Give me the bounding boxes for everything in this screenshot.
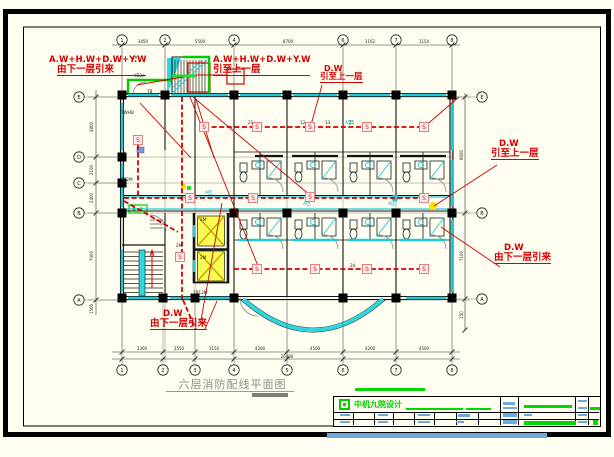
dimension-text: 4500 [310,346,321,351]
field-text-bar [578,400,587,402]
dimension-text: 4200 [365,346,376,351]
plan-micro-label: TB [146,89,153,94]
signature-bar [406,408,463,410]
dimension-total-text: 26400 [281,354,294,359]
grid-bubble-label: 8 [450,38,453,44]
smoke-detector-label: S [422,195,426,202]
wiring-leader-line [424,97,459,127]
titleblock-top-green-bar [355,388,425,391]
column [448,294,457,303]
titleblock-line [588,397,589,425]
field-text-bar [418,421,430,423]
smoke-detector-label: S [422,124,426,131]
stairwell [122,215,166,296]
grid-bubble-label: A [480,297,484,303]
dimension-text: 3162 [365,39,376,44]
annotation-dw-right-lower: D.W 由下一层引来 [494,244,551,264]
column [230,294,239,303]
annotation-text: 由下一层引来 [150,319,207,330]
smoke-detector-label: S [178,254,182,261]
field-text-bar [578,407,587,409]
grid-bubble-label: 3 [193,368,196,374]
dimension-text: 4800 [89,121,94,132]
annotation-dw-bottom: D.W 由下一层引来 [150,310,207,330]
titleblock-line [434,412,435,425]
grid-bubble-label: E [480,95,483,101]
field-text-bar [340,414,350,416]
company-logo-mark [343,403,346,406]
field-text-bar [340,421,350,423]
dimension-text: 2400 [89,192,94,203]
grid-bubble-label: B [480,211,484,217]
smoke-detector-label: S [365,124,369,131]
dimension-text: 2100 [89,164,94,175]
field-text-bar [418,414,430,416]
company-name: 中机九院设计 [354,399,402,410]
dimension-text: 3150 [209,346,220,351]
dimension-text: 7000 [89,250,94,261]
field-text-bar [524,421,576,425]
dimension-text: 7100 [459,250,464,261]
annotation-text: 由下一层引来 [494,253,551,264]
grid-bubble-label: 8 [450,368,453,374]
annotation-feeder-topcenter: A.W+H.W+D.W+Y.W 引至上一层 [213,56,310,76]
plan-micro-label: 2M [200,217,207,222]
dimension-text: 4200 [255,346,266,351]
annotation-dw-right-upper: D.W 引至上一层 [491,140,539,160]
grid-bubble-label: 6 [341,38,344,44]
grid-bubble-label: 1 [120,368,123,374]
field-text-bar [524,405,572,408]
column [159,294,168,303]
titleblock-line [500,397,501,425]
plan-micro-label: 3E2M [121,177,133,182]
field-text-bar [456,421,464,423]
field-text-bar [590,407,600,410]
wiring-leader-line [434,165,497,206]
field-text-bar [578,421,587,423]
titleblock-line [518,397,519,425]
zone-label: A区 [303,201,311,207]
annotation-text: 引至上一层 [320,73,363,83]
plan-micro-label: 12 [300,120,306,125]
annotation-text: 由下一层引来 [57,65,146,76]
cad-drawing-page: SSSSSSSSSSSSSSSJ#YB2aTB7WHB3E2M2M1B12M21… [0,0,614,457]
plan-micro-label: 1B12M [193,290,208,295]
plan-micro-label: 13 [325,120,331,125]
smoke-detector-label: S [313,266,317,273]
signature-bar [466,408,491,410]
bottom-highlight-bar [327,433,547,438]
grid-bubble-label: A [77,298,81,304]
plan-micro-label: 2M [176,243,183,248]
titleblock-line [456,412,457,425]
grid-bubble-label: E [77,95,80,101]
wiring-leader-line [311,85,322,125]
title-underline-thick [252,393,288,397]
drawing-title: 六层消防配线平面图 [170,376,295,392]
field-text-bar [503,407,517,409]
titleblock-line [393,412,394,425]
smoke-detector-label: S [188,195,192,202]
dimension-text: 2550 [174,346,185,351]
zone-label: A区 [388,201,396,207]
titleblock-line [478,412,479,425]
column [339,294,348,303]
field-text-bar [458,414,470,417]
titleblock: 中机九院设计 [333,396,601,427]
grid-bubble-label: 1 [120,38,123,44]
zone-label: A区 [345,120,353,126]
annotation-text: 引至上一层 [491,149,539,160]
dimension-text: 4500 [419,346,430,351]
smoke-detector-label: S [255,266,259,273]
grid-bubble-label: 4 [232,38,235,44]
smoke-detector-label: S [255,124,259,131]
company-logo [339,399,350,410]
grid-bubble-label: B [77,211,81,217]
annotation-dw-top: D.W 引至上一层 [320,65,363,83]
grid-bubble-label: 5 [285,368,288,374]
grid-bubble-label: 2 [161,368,164,374]
grid-bubble-label: 6 [341,368,344,374]
column [283,91,292,100]
title-underline [166,391,294,392]
dimension-text: 3300 [137,346,148,351]
field-text-bar [578,414,587,416]
annotation-text: 引至上一层 [213,65,310,76]
grid-bubble-label: 4 [232,368,235,374]
grid-bubble-label: C [77,181,81,187]
annotation-feeder-topleft: A.W+H.W+D.W+Y.W 由下一层引来 [49,56,146,76]
field-text-bar [503,420,517,424]
dimension-text: 150 [459,311,464,319]
plan-micro-label: 21 [248,120,254,125]
smoke-detector-label: S [308,194,312,201]
curved-curtain-wall [240,299,386,332]
field-text-bar [378,414,388,416]
dimension-text: 3450 [138,39,149,44]
column [118,294,127,303]
inner-frame [24,27,601,426]
elevators [193,213,229,283]
column [283,209,292,218]
dimension-text: 9600 [459,149,464,160]
titleblock-line [353,412,354,425]
grid-bubble-label: 7 [394,38,397,44]
zone-label: A区 [205,190,213,196]
smoke-detector-label: S [422,266,426,273]
titleblock-line [374,412,375,425]
field-text-bar [378,421,388,423]
dimension-text: 8700 [283,39,294,44]
plan-micro-label: 2M [200,255,207,260]
field-text-bar [524,414,532,416]
dimension-text: 3154 [419,39,430,44]
field-text-bar [593,420,598,425]
grid-bubble-label: 2 [163,38,166,44]
column [392,294,401,303]
grid-bubble-label: D [77,155,81,161]
smoke-detector-label: S [251,195,255,202]
smoke-detector-label: S [202,124,206,131]
column [339,209,348,218]
plan-micro-label: 24 [350,263,356,268]
field-text-bar [503,413,517,417]
titleblock-line [414,412,415,425]
field-text-bar [503,402,515,405]
plan-micro-label: 7WHB [121,110,134,115]
smoke-detector-label: S [308,124,312,131]
smoke-detector-label: S [136,137,140,144]
dimension-text: 5500 [195,39,206,44]
smoke-detector-label: S [365,266,369,273]
column [392,209,401,218]
fire-wiring-run [124,201,178,232]
grid-bubble-label: 7 [394,368,397,374]
dimension-text: 1500 [89,303,94,314]
